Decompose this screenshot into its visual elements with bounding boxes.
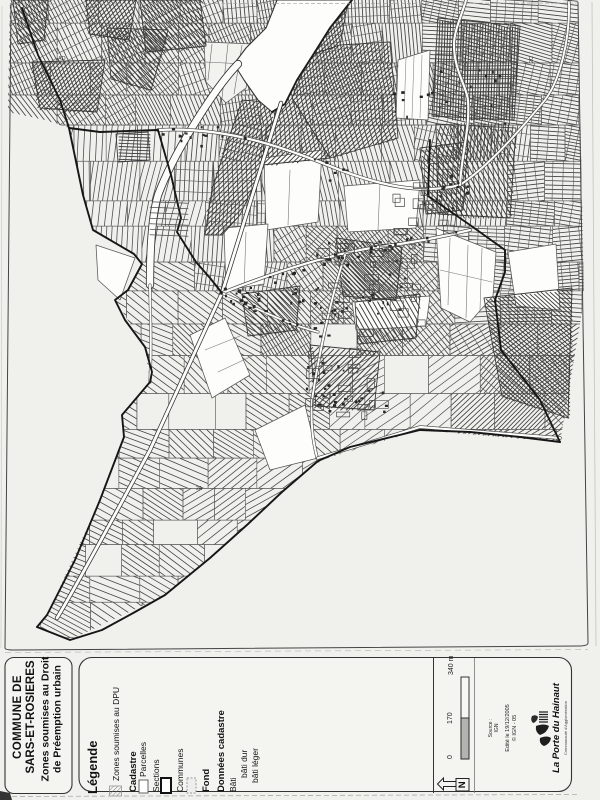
- svg-text:2A: 2A: [196, 486, 203, 492]
- svg-text:170: 170: [447, 712, 454, 724]
- svg-text:SARS-ET-ROSIERES: SARS-ET-ROSIERES: [25, 660, 37, 773]
- svg-text:0: 0: [447, 755, 454, 759]
- svg-text:de Préemption urbain: de Préemption urbain: [52, 665, 64, 773]
- svg-text:Bâti: Bâti: [228, 777, 238, 792]
- svg-text:COMMUNE DE: COMMUNE DE: [12, 675, 24, 759]
- svg-text:Edité le 19/12/2005: Edité le 19/12/2005: [505, 704, 511, 751]
- svg-text:Fond: Fond: [201, 769, 212, 792]
- svg-text:2C: 2C: [529, 56, 535, 63]
- svg-text:© IGN - 05: © IGN - 05: [511, 715, 518, 741]
- svg-text:Sections: Sections: [151, 759, 161, 792]
- svg-text:bâti dur: bâti dur: [239, 749, 249, 778]
- svg-text:bâti léger: bâti léger: [250, 748, 260, 783]
- svg-text:Communauté d'Agglomération: Communauté d'Agglomération: [563, 701, 568, 755]
- svg-text:340 m: 340 m: [448, 655, 455, 675]
- svg-text:Légende: Légende: [85, 741, 100, 794]
- svg-text:Parcelles: Parcelles: [138, 742, 148, 777]
- svg-text:La Porte du Hainaut: La Porte du Hainaut: [551, 682, 562, 773]
- svg-text:Zones soumises au DPU: Zones soumises au DPU: [111, 687, 121, 781]
- svg-text:AD: AD: [58, 56, 66, 62]
- svg-text:IGN: IGN: [494, 723, 500, 732]
- svg-text:N: N: [457, 781, 468, 788]
- svg-text:Données cadastre: Données cadastre: [216, 710, 227, 792]
- svg-text:Zones soumises au Droit: Zones soumises au Droit: [40, 656, 52, 781]
- svg-text:Communes: Communes: [175, 749, 185, 792]
